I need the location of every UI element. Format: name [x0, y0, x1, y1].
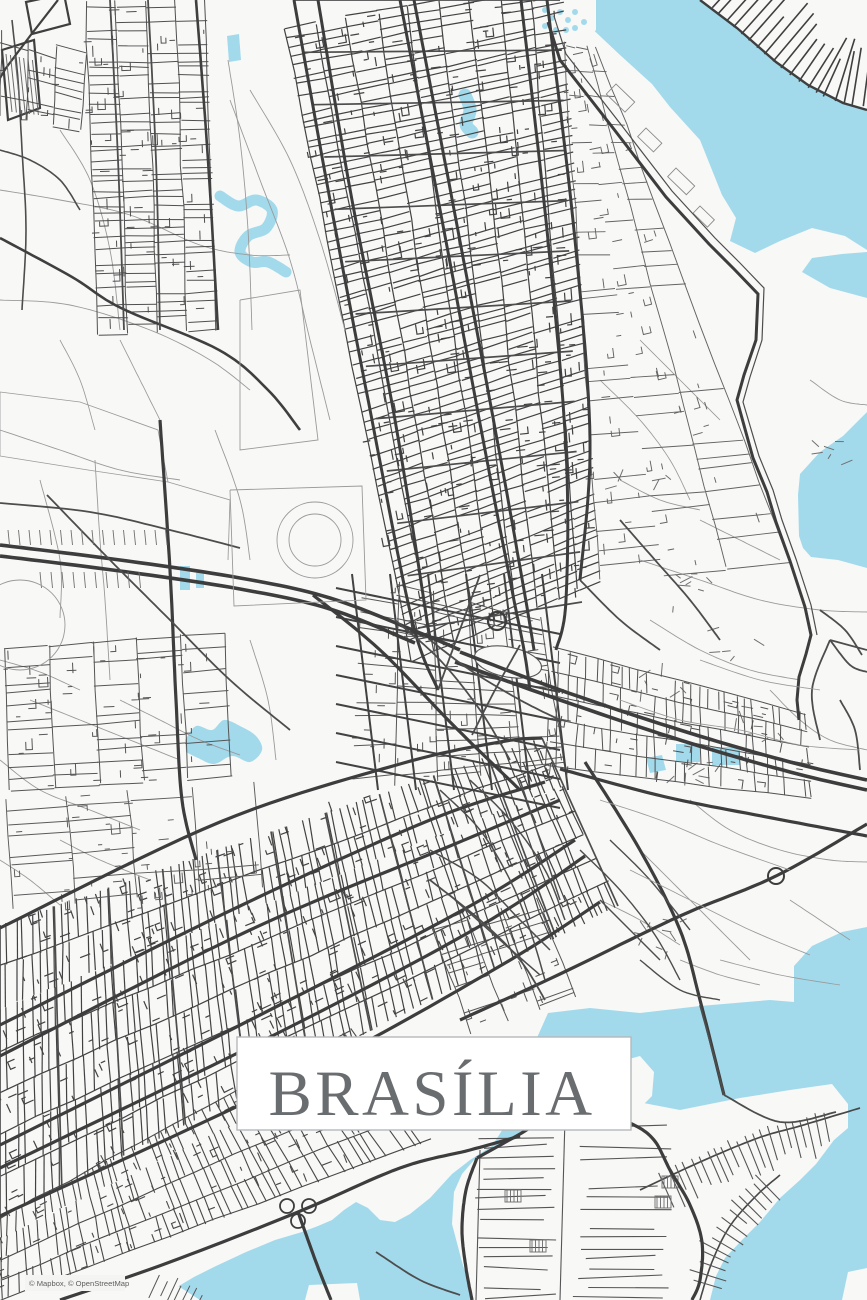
- svg-text:BRASÍLIA: BRASÍLIA: [269, 1058, 596, 1130]
- svg-text:© Mapbox, © OpenStreetMap: © Mapbox, © OpenStreetMap: [29, 1279, 129, 1288]
